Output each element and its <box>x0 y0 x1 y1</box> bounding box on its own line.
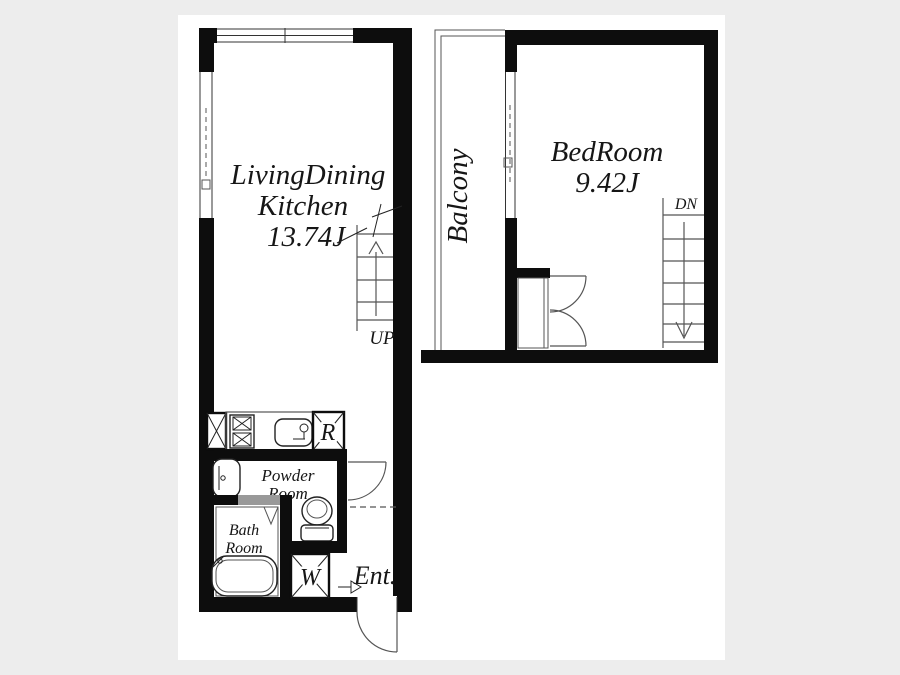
stove-icon <box>230 415 254 448</box>
wall-closet-top <box>512 268 550 278</box>
ldk-label-line2: Kitchen <box>257 190 348 222</box>
wall-bedroom-top <box>505 30 718 45</box>
window-ldk-top <box>217 27 353 44</box>
wall-bedroom-right <box>704 30 718 363</box>
bath-sliding-door <box>238 495 280 505</box>
floorplan-canvas: LivingDining Kitchen 13.74J UP <box>0 0 900 675</box>
stair-up-label: UP <box>369 328 395 349</box>
powder-room-label-line1: Powder <box>261 466 315 485</box>
floorplan-drawing: LivingDining Kitchen 13.74J UP <box>0 0 900 675</box>
refrigerator: R <box>313 412 344 450</box>
ldk-label-line1: LivingDining <box>230 159 386 191</box>
kitchen-sink-icon <box>275 419 312 446</box>
washing-machine: W <box>291 554 329 598</box>
bedroom-label: BedRoom <box>551 136 664 168</box>
bath-room-label-line2: Room <box>224 540 262 557</box>
bath-room-label-line1: Bath <box>229 522 259 539</box>
ldk-size-label: 13.74J <box>267 221 346 253</box>
balcony-label: Balcony <box>442 148 474 243</box>
wall-bedroom-bottom <box>421 350 718 363</box>
wall-ldk-right <box>393 28 412 612</box>
wall-bedroom-left-upper <box>505 30 517 72</box>
vanity-sink-icon <box>213 459 240 497</box>
bedroom-size-label: 9.42J <box>575 167 640 199</box>
wall-bath-top <box>199 495 238 505</box>
stair-down-label: DN <box>674 196 699 213</box>
window-ldk-left <box>198 72 215 218</box>
bathtub-icon <box>212 556 277 596</box>
wall-toilet-bottom <box>292 541 347 553</box>
balcony-door <box>504 72 517 218</box>
toilet-icon <box>301 497 333 541</box>
refrigerator-label: R <box>320 420 336 446</box>
wall-bedroom-left-lower <box>505 218 517 350</box>
washer-label: W <box>300 565 322 591</box>
wall-powder-right <box>337 449 347 551</box>
